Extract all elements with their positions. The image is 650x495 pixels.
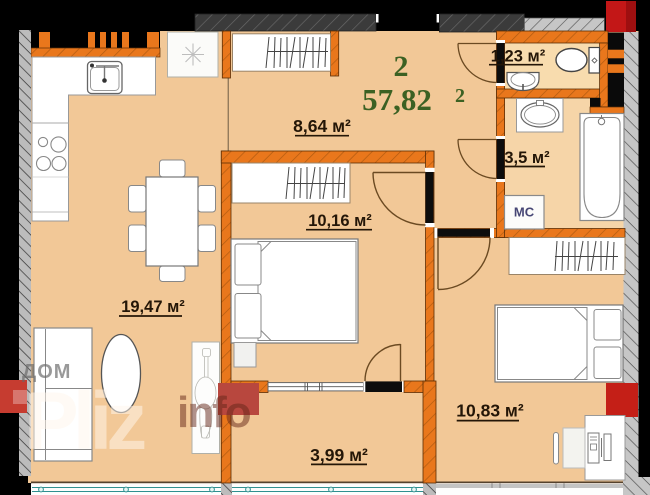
svg-text:3,99 м²: 3,99 м² xyxy=(310,445,368,465)
svg-text:1,23 м²: 1,23 м² xyxy=(491,48,546,66)
svg-text:Pliz: Pliz xyxy=(24,376,145,467)
svg-text:57,82: 57,82 xyxy=(362,82,432,117)
svg-text:8,64 м²: 8,64 м² xyxy=(293,116,351,136)
svg-text:10,16 м²: 10,16 м² xyxy=(308,212,372,230)
svg-text:info: info xyxy=(177,388,251,437)
svg-text:10,83 м²: 10,83 м² xyxy=(456,401,524,421)
svg-text:19,47 м²: 19,47 м² xyxy=(121,298,185,316)
svg-text:2: 2 xyxy=(394,50,409,83)
svg-text:3,5 м²: 3,5 м² xyxy=(504,149,550,167)
svg-text:2: 2 xyxy=(455,85,465,107)
svg-text:МС: МС xyxy=(514,205,535,220)
